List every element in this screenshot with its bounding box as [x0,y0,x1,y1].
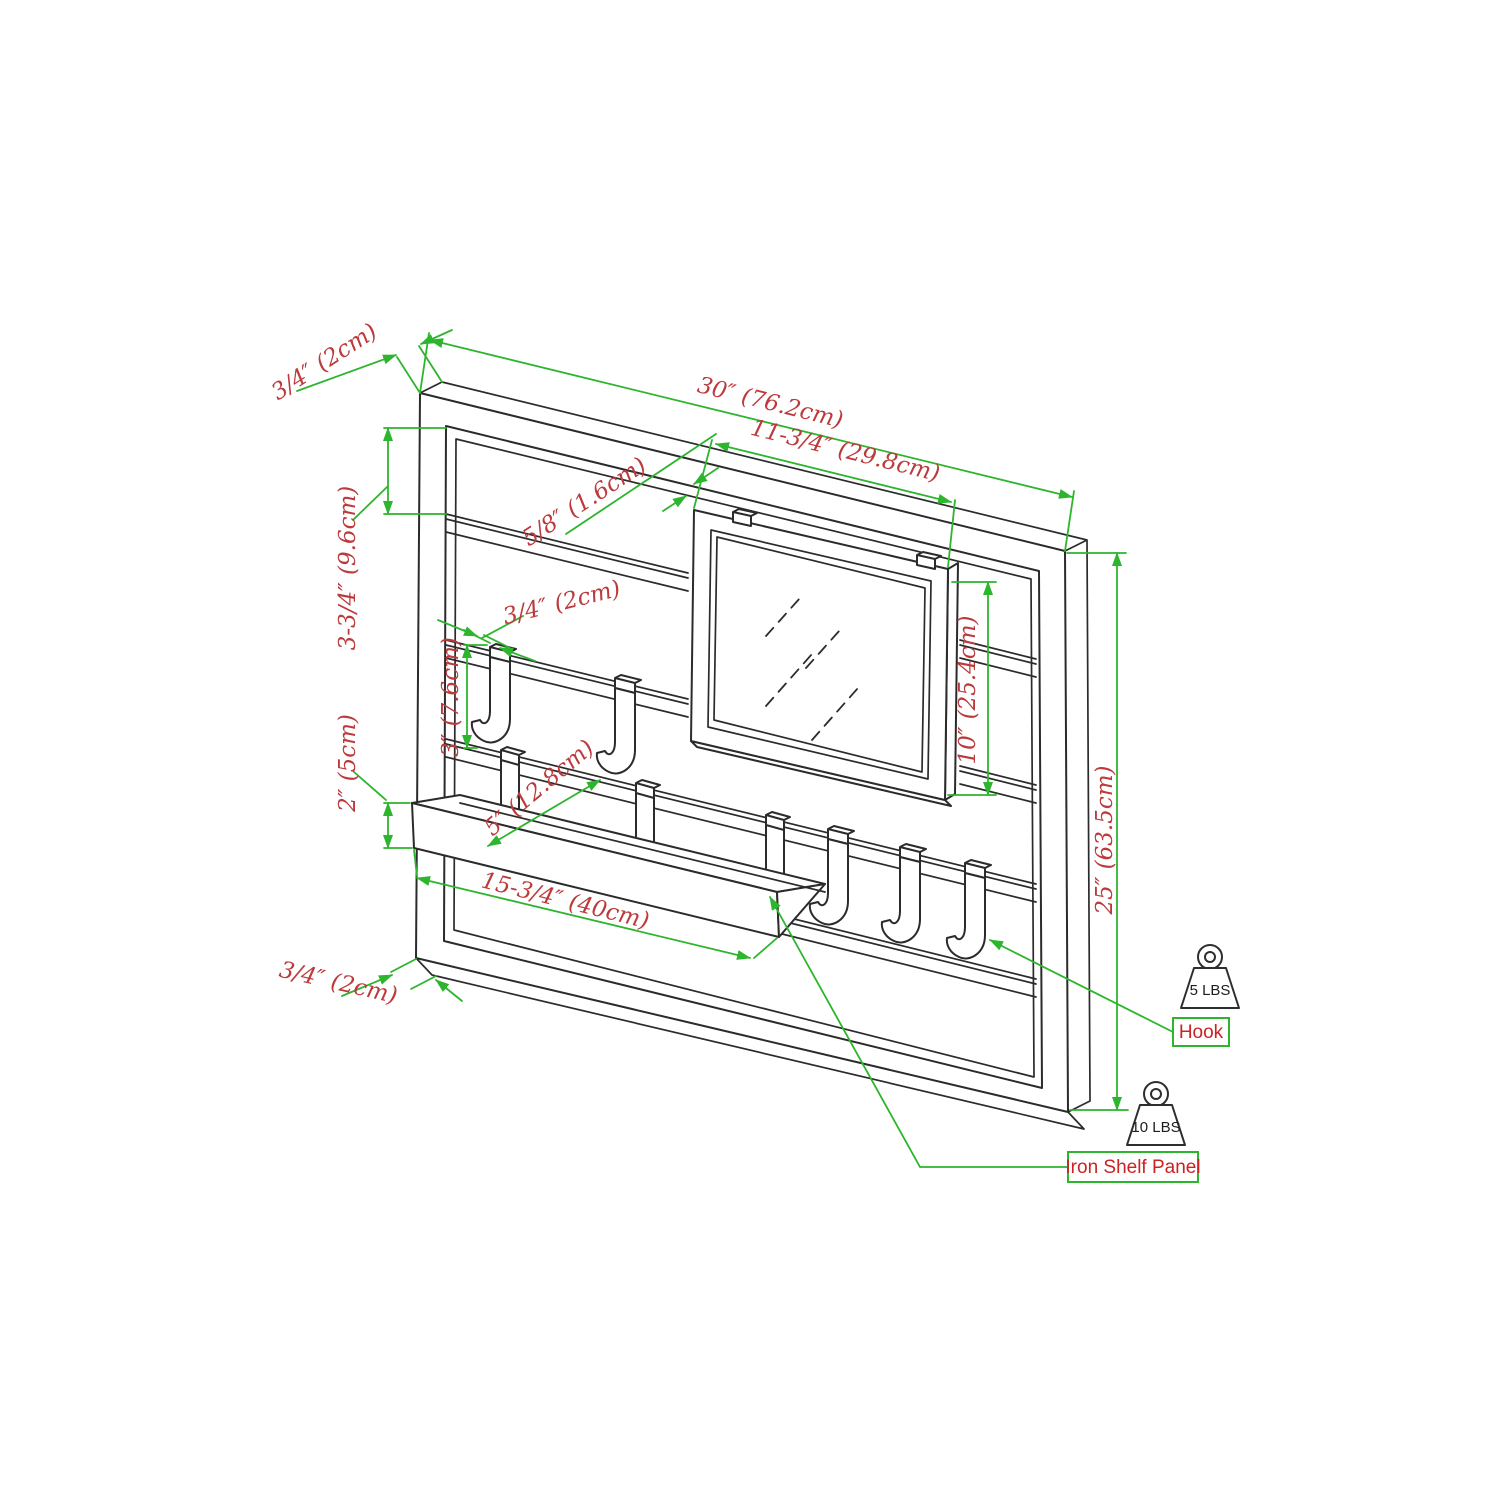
dim-frame-thickness-top-text: 3/4″ (2cm) [267,319,382,406]
dimension-hook-width: 3/4″ (2cm) [438,576,623,661]
dim-top-slat-spacing-text: 3-3/4″ (9.6cm) [335,486,361,651]
weight-icon-10lbs: 10 LBS [1127,1082,1185,1145]
dim-shelf-lip-height-text: 2″ (5cm) [335,714,361,813]
weight-10lbs-text: 10 LBS [1131,1119,1180,1136]
weight-icon-5lbs: 5 LBS [1181,945,1239,1008]
dimension-overall-height: 25″ (63.5cm) [1067,553,1128,1110]
hook-callout-text: Hook [1179,1022,1224,1043]
hook-upper-1 [472,644,516,742]
hook-lower-1 [810,826,854,924]
dimension-frame-thickness-bottom: 3/4″ (2cm) [277,957,462,1009]
hook-upper-2 [597,675,641,773]
hook-lower-2 [882,844,926,942]
dim-hook-width-text: 3/4″ (2cm) [500,576,623,630]
dim-slat-thickness-text: 5/8″ (1.6cm) [518,453,651,552]
dim-overall-height-text: 25″ (63.5cm) [1092,765,1118,915]
weight-5lbs-text: 5 LBS [1190,982,1231,999]
technical-drawing: 3/4″ (2cm) 30″ (76.2cm) 11-3/4″ (29.8cm)… [0,0,1500,1500]
dimension-top-slat-spacing: 3-3/4″ (9.6cm) [335,428,446,650]
dim-hook-height-text: 3″ (7.6cm) [438,637,464,757]
mirror [691,509,958,806]
dimension-shelf-lip-height: 2″ (5cm) [335,714,412,848]
dim-frame-thickness-bottom-text: 3/4″ (2cm) [277,957,400,1009]
drawing-page: 3/4″ (2cm) 30″ (76.2cm) 11-3/4″ (29.8cm)… [0,0,1500,1500]
hook-lower-3 [947,860,991,958]
shelf-callout-text: Iron Shelf Panel [1065,1157,1200,1178]
dim-mirror-height-text: 10″ (25.4cm) [955,615,981,764]
